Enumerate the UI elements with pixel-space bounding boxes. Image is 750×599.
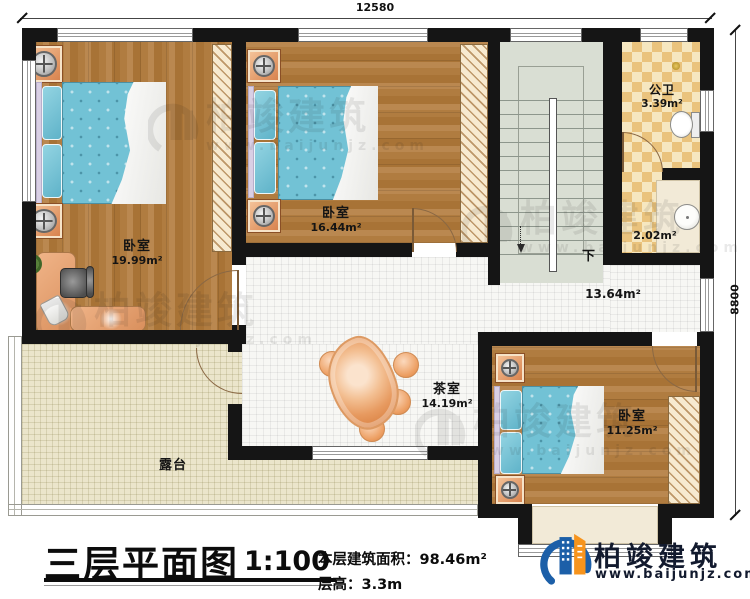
bed-pillow <box>254 90 276 140</box>
wardrobe <box>460 44 488 243</box>
wall-bedroom1-east <box>232 42 246 265</box>
stair-railing <box>549 98 557 272</box>
room-area: 13.64m² <box>573 288 653 302</box>
room-name: 露台 <box>143 459 203 474</box>
wall-stair-east <box>603 42 622 265</box>
stair-direction-text: 下 <box>578 250 600 265</box>
dimension-top-value: 12580 <box>340 1 410 14</box>
window-hall-right <box>700 278 714 332</box>
bed-pillow <box>42 144 62 198</box>
dimension-top-line <box>20 18 712 19</box>
bed-pillow <box>254 142 276 194</box>
floor-height-text: 层高：3.3m <box>318 573 402 594</box>
toilet <box>670 111 693 138</box>
nightstand-lamp <box>496 476 524 504</box>
wall-bedroom2-south-left <box>246 243 412 257</box>
door-leaf-bedroom2 <box>412 208 414 252</box>
room-area: 2.02m² <box>624 230 686 243</box>
window-bedroom1-top <box>57 28 193 42</box>
room-label-hallway: 13.64m² <box>573 288 653 302</box>
room-label-bedroom3: 卧室 11.25m² <box>593 410 671 438</box>
window-bathroom-right <box>700 90 714 132</box>
wall-tearoom-south-right <box>428 446 478 460</box>
wall-bedroom3-north-right <box>697 332 714 346</box>
nightstand-lamp <box>496 354 524 382</box>
window-bathroom-top <box>640 28 688 42</box>
wall-tearoom-south-left <box>228 446 312 460</box>
wall-bedroom3-south-left <box>478 504 520 518</box>
title-underline-thin <box>44 585 336 586</box>
nightstand-lamp <box>248 200 280 232</box>
room-name: 卧室 <box>293 207 379 222</box>
wardrobe <box>668 396 700 504</box>
terrace-railing-left <box>8 336 22 516</box>
dimension-right-line <box>735 30 736 516</box>
room-label-bathroom: 公卫 3.39m² <box>629 84 695 110</box>
room-label-bedroom1: 卧室 19.99m² <box>94 240 180 268</box>
window-bedroom2-top <box>298 28 428 42</box>
bed-pillow <box>500 390 522 430</box>
desk-chair <box>60 268 88 298</box>
wall-bedroom3-west <box>478 332 492 518</box>
room-area: 19.99m² <box>94 255 180 268</box>
brand-logo-icon <box>540 528 592 590</box>
shower-fitting <box>672 62 680 70</box>
wardrobe <box>212 44 232 252</box>
room-label-washroom: 2.02m² <box>624 230 686 243</box>
wall-washroom-south <box>610 253 714 265</box>
dimension-right-value: 8800 <box>729 280 742 320</box>
window-stair-top <box>510 28 582 42</box>
stool <box>393 352 419 378</box>
door-leaf-bedroom1 <box>237 270 239 330</box>
room-area: 14.19m² <box>408 398 486 411</box>
door-leaf-bedroom3 <box>695 346 697 392</box>
room-label-terrace: 露台 <box>143 459 203 474</box>
room-area: 11.25m² <box>593 425 671 438</box>
bed-pillow <box>42 86 62 140</box>
room-label-tearoom: 茶室 14.19m² <box>408 383 486 411</box>
wall-bedroom1-south <box>22 330 246 344</box>
room-name: 卧室 <box>94 240 180 255</box>
wall-bedroom2-south-right <box>456 243 488 257</box>
wall-bathroom-south-stub <box>662 168 700 180</box>
nightstand-lamp <box>248 50 280 82</box>
sink <box>674 204 700 230</box>
window-bedroom1-left <box>22 60 36 202</box>
room-label-bedroom2: 卧室 16.44m² <box>293 207 379 235</box>
room-name: 茶室 <box>408 383 486 398</box>
desk-lamp-glow <box>100 308 122 330</box>
door-leaf-bathroom <box>622 132 624 172</box>
floor-area-text: 本层建筑面积：98.46m² <box>318 548 487 569</box>
stair-direction-line <box>520 226 521 246</box>
window-tearoom-south <box>312 446 428 460</box>
room-area: 16.44m² <box>293 222 379 235</box>
bed-pillow <box>500 432 522 474</box>
room-name: 公卫 <box>629 84 695 98</box>
room-name: 卧室 <box>593 410 671 425</box>
terrace-railing-bottom <box>8 504 478 516</box>
stair-down-label: 下 <box>578 250 600 265</box>
room-area: 3.39m² <box>629 98 695 110</box>
brand-url: www.baijunjz.com <box>595 567 750 582</box>
wall-bedroom3-north-left <box>478 332 652 346</box>
desk-chair-back <box>86 266 94 298</box>
stair-down-arrow <box>517 244 525 253</box>
title-underline <box>44 578 336 582</box>
floorplan-screenshot: 卧室 19.99m² 卧室 16.44m² 公卫 3.39m² 2.02m² 1… <box>0 0 750 599</box>
wall-bedroom3-south-right <box>672 504 714 518</box>
wall-stair-west <box>488 42 500 285</box>
